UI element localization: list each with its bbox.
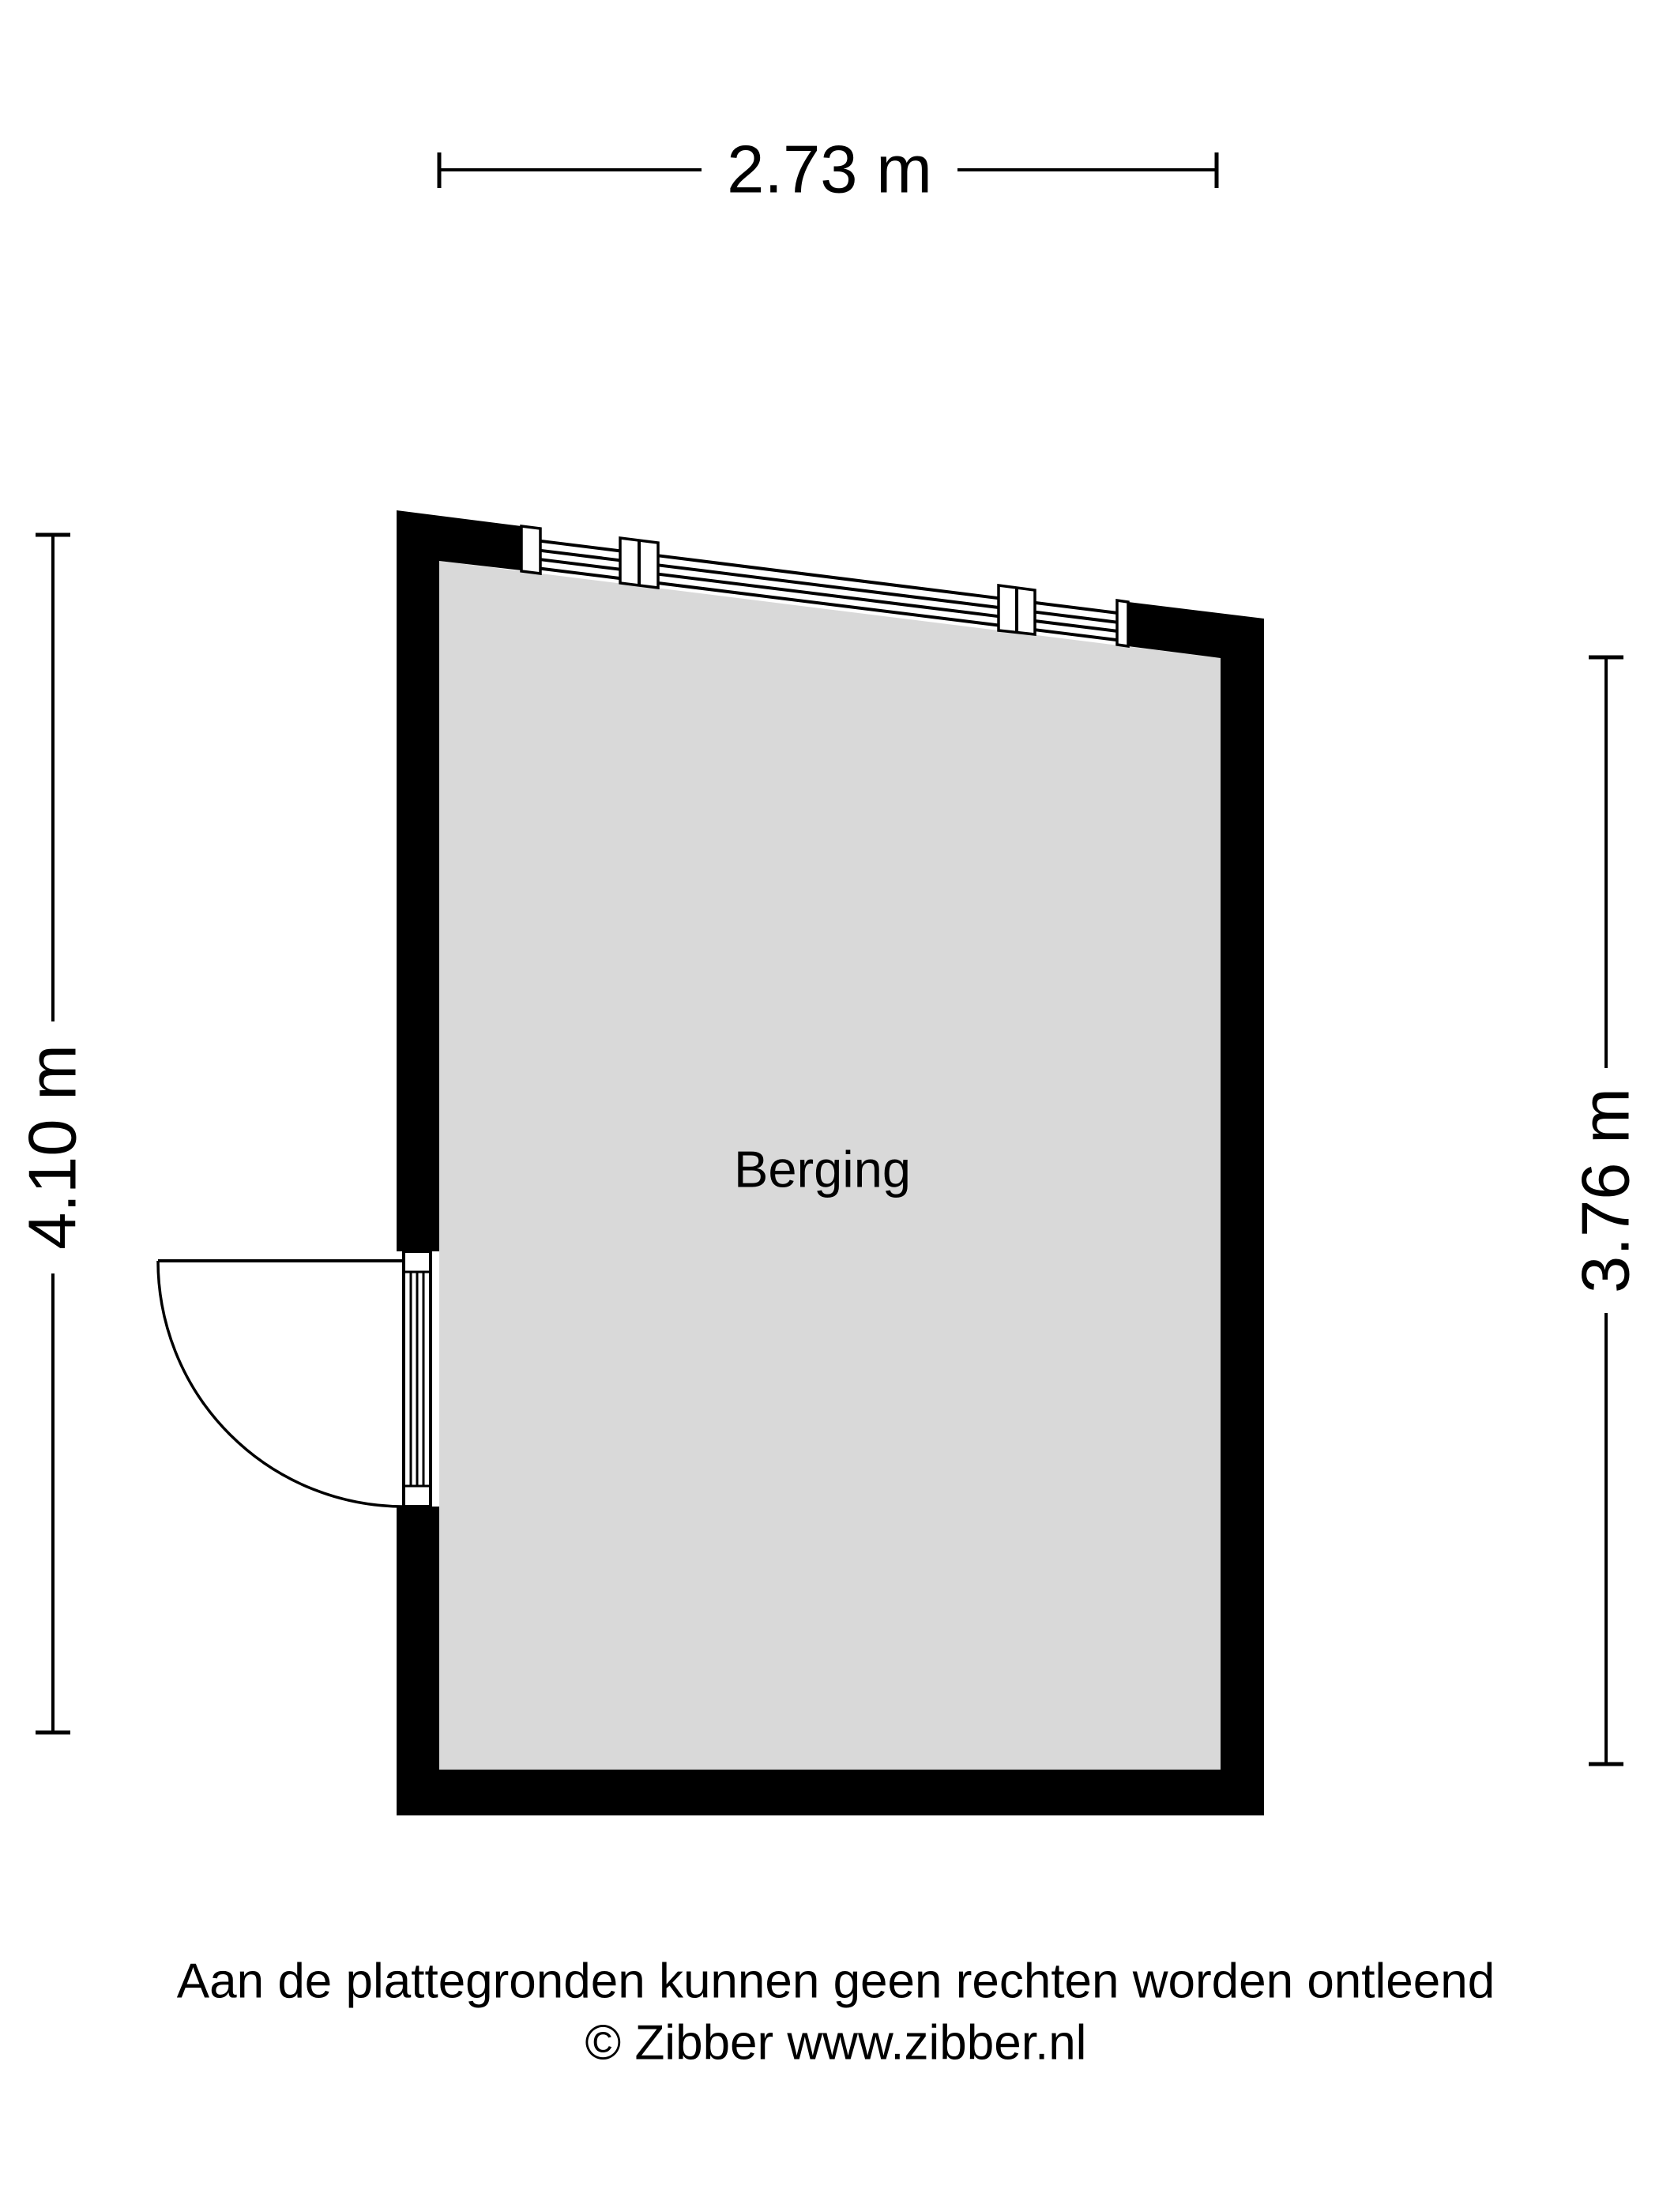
window-glazing-section-a [540, 541, 620, 578]
floor-plan-canvas: 2.73 m 4.10 m 3.76 m [0, 0, 1659, 2212]
glazing-line [658, 555, 999, 598]
top-dimension-label: 2.73 m [727, 133, 932, 208]
window-mullion-2 [999, 585, 1035, 634]
glazing-line [540, 541, 620, 551]
glazing-line [1035, 603, 1117, 613]
door-swing-arc [158, 1261, 404, 1507]
glazing-line [1035, 621, 1117, 631]
window-glazing-section-c [1035, 603, 1117, 640]
glazing-line [540, 551, 620, 561]
top-dimension: 2.73 m [439, 133, 1217, 208]
window-jamb-right [1117, 600, 1128, 646]
right-dimension: 3.76 m [1569, 657, 1644, 1764]
window-jamb-left [521, 526, 540, 574]
glazing-line [540, 559, 620, 570]
window-mullion-1 [620, 538, 658, 588]
wall-bottom [397, 1770, 1264, 1815]
left-dimension-label: 4.10 m [16, 1044, 91, 1250]
right-dimension-label: 3.76 m [1569, 1088, 1644, 1293]
door [158, 1251, 431, 1507]
room-label: Berging [734, 1141, 911, 1198]
room-berging: Berging [158, 510, 1264, 1815]
wall-left-lower [397, 1507, 439, 1815]
glazing-line [1035, 612, 1117, 623]
footer-copyright: © Zibber www.zibber.nl [585, 2016, 1087, 2071]
footer-disclaimer: Aan de plattegronden kunnen geen rechten… [177, 1954, 1495, 2009]
left-dimension: 4.10 m [16, 535, 91, 1732]
footer: Aan de plattegronden kunnen geen rechten… [177, 1954, 1495, 2071]
